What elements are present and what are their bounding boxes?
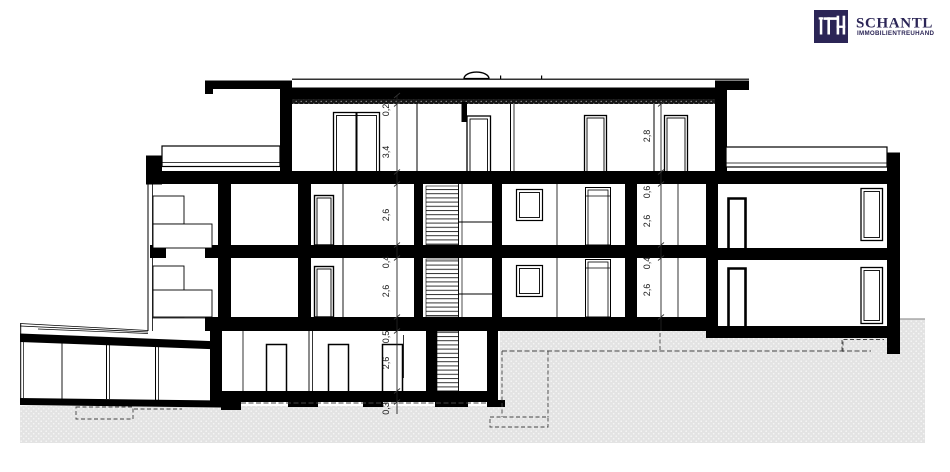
svg-text:0,4: 0,4 bbox=[381, 256, 391, 269]
svg-text:0,6: 0,6 bbox=[642, 186, 652, 199]
svg-text:2,6: 2,6 bbox=[381, 357, 391, 370]
svg-text:SCHANTL: SCHANTL bbox=[856, 16, 933, 32]
svg-text:3,4: 3,4 bbox=[381, 146, 391, 159]
svg-text:0,4: 0,4 bbox=[642, 257, 652, 270]
svg-text:IMMOBILIENTREUHAND: IMMOBILIENTREUHAND bbox=[857, 30, 934, 37]
svg-text:2,8: 2,8 bbox=[642, 130, 652, 143]
svg-text:2,6: 2,6 bbox=[642, 215, 652, 228]
svg-text:2,6: 2,6 bbox=[381, 209, 391, 222]
svg-text:0,3: 0,3 bbox=[381, 402, 391, 415]
svg-text:0,2: 0,2 bbox=[381, 104, 391, 117]
svg-text:2,6: 2,6 bbox=[381, 285, 391, 298]
svg-text:0,5: 0,5 bbox=[381, 331, 391, 344]
svg-text:2,6: 2,6 bbox=[642, 284, 652, 297]
